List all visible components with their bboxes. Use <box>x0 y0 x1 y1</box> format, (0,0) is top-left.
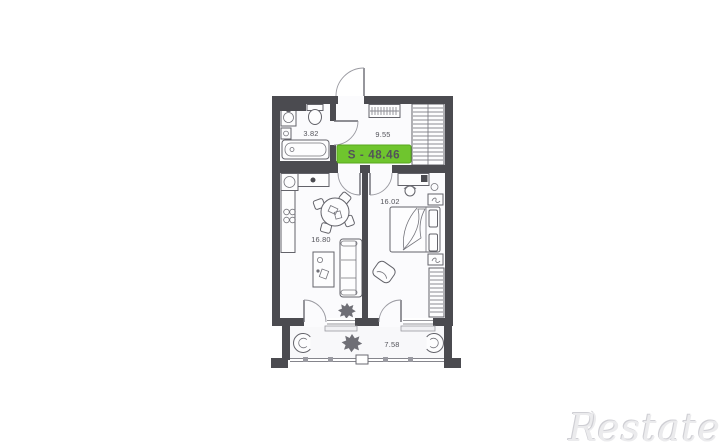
sofa-symbol <box>340 239 362 297</box>
nightstand-top-symbol <box>428 194 443 205</box>
nightstand-bottom-symbol <box>428 254 443 265</box>
wall-room-divider <box>362 165 368 318</box>
wall-balcony-left <box>282 326 290 360</box>
wall-bottom-left <box>272 318 304 326</box>
watermark-mark: ) <box>589 409 598 433</box>
shoe-cabinet-symbol <box>369 105 400 118</box>
duct-shaft <box>280 104 306 111</box>
wall-bathroom-bottom <box>280 161 338 173</box>
balcony-area-label: 7.58 <box>384 340 399 349</box>
balcony-stub-left <box>271 358 288 368</box>
watermark-restate-logo: R)estate <box>568 406 721 444</box>
dresser-symbol <box>429 268 444 317</box>
toilet-symbol <box>307 105 323 125</box>
bathroom-area-label: 3.82 <box>303 129 318 138</box>
wall-right <box>445 96 453 326</box>
balcony-stub-right <box>444 358 461 368</box>
wall-top-left <box>272 96 338 104</box>
bathroom-sink-symbol <box>281 109 296 126</box>
wall-bathroom-upper <box>330 104 336 121</box>
total-area-badge-text: S - 48.46 <box>348 149 400 162</box>
wall-top-right <box>364 96 453 104</box>
wardrobe-symbol <box>412 104 444 165</box>
floor-plan: 3.82 9.55 16.80 16.02 7.58 S - 48.46 <box>0 0 725 444</box>
tv-console-symbol <box>313 252 334 287</box>
bathtub-symbol <box>282 140 329 159</box>
kitchen-sink-symbol <box>281 174 298 191</box>
wall-hall-right <box>392 165 445 173</box>
bed-symbol <box>390 207 440 252</box>
balcony-chair-left-symbol <box>294 334 311 353</box>
hob-counter-symbol <box>298 174 329 187</box>
kitchen-counter-symbol <box>281 191 295 253</box>
living-window-symbol <box>325 318 357 331</box>
total-area-badge: S - 48.46 <box>337 145 411 163</box>
washer-symbol <box>281 128 291 139</box>
floor-plan-page: 3.82 9.55 16.80 16.02 7.58 S - 48.46 R)e… <box>0 0 725 444</box>
wall-bathroom-lower <box>330 145 336 162</box>
entrance-door <box>336 68 364 96</box>
watermark-suffix: estate <box>597 406 721 444</box>
wall-bottom-mid <box>355 318 379 326</box>
desk-chair-symbol <box>404 186 416 196</box>
wall-left <box>272 96 280 326</box>
wall-bottom-right <box>433 318 453 326</box>
balcony-chair-right-symbol <box>427 334 444 353</box>
bedroom-window-symbol <box>401 318 435 331</box>
living-kitchen-area-label: 16.80 <box>311 235 331 244</box>
bedroom-area-label: 16.02 <box>380 197 400 206</box>
hallway-area-label: 9.55 <box>375 130 390 139</box>
wall-balcony-right <box>444 326 452 360</box>
